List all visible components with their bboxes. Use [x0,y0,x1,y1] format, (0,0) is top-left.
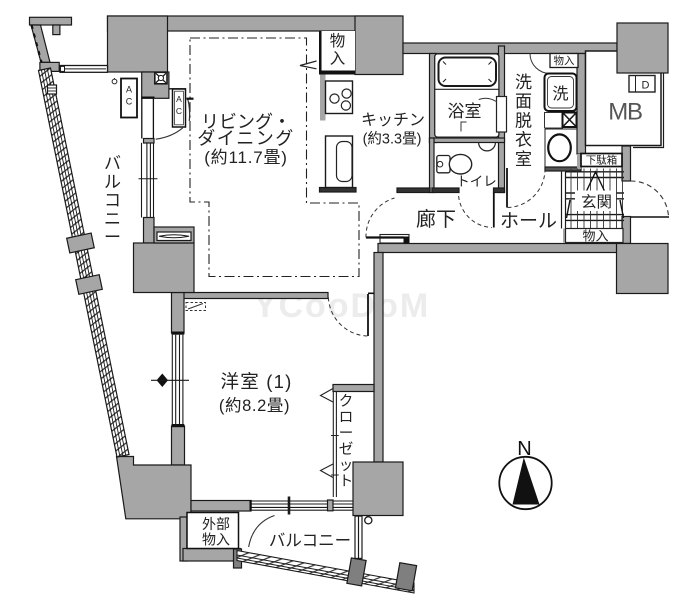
svg-text:下駄箱: 下駄箱 [586,154,618,167]
svg-text:物入: 物入 [330,32,346,68]
svg-text:バルコニー: バルコニー [104,154,121,247]
svg-text:N: N [517,438,531,460]
svg-text:物入: 物入 [554,54,575,67]
svg-text:洗: 洗 [552,85,568,103]
svg-text:廊下: 廊下 [416,208,456,231]
svg-text:キッチン: キッチン [361,112,425,129]
svg-text:物入: 物入 [202,532,230,548]
svg-text:物入: 物入 [582,229,608,244]
svg-text:ダイニング: ダイニング [197,129,295,149]
svg-text:ホール: ホール [500,211,557,232]
svg-text:クローゼット: クローゼット [339,393,354,490]
svg-text:(約11.7畳): (約11.7畳) [204,148,288,167]
svg-text:洗面脱衣室: 洗面脱衣室 [515,73,532,169]
svg-text:洋室 (1): 洋室 (1) [221,371,293,392]
svg-text:(約3.3畳): (約3.3畳) [363,131,422,148]
svg-text:外部: 外部 [202,516,230,532]
svg-text:MB: MB [608,99,642,126]
svg-text:玄関: 玄関 [581,193,612,211]
svg-text:バルコニー: バルコニー [269,532,351,550]
svg-text:D: D [642,80,650,92]
svg-text:トイレ: トイレ [456,174,497,189]
svg-text:(約8.2畳): (約8.2畳) [219,396,290,415]
svg-text:浴室: 浴室 [448,102,482,121]
